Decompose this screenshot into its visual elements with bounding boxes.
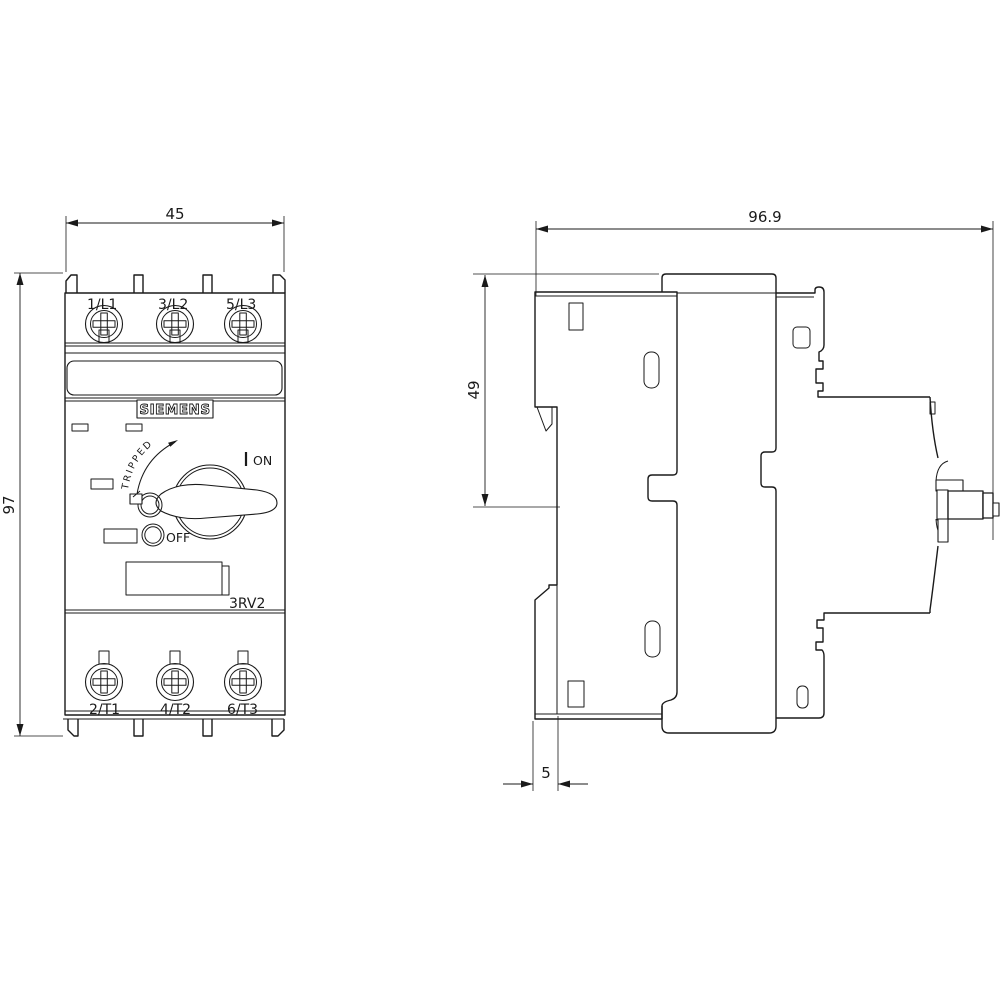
arc-chamber-band [67,361,282,395]
screw-slot-h [232,321,254,328]
raised-top-outline [662,274,776,292]
arrowhead-right-icon [521,781,533,788]
terminal-screw [157,651,194,701]
terminal-label-6T3: 6/T3 [227,702,258,718]
pivot-stop-block [130,494,142,504]
screw-slot-v [172,671,179,693]
label-field-step [222,566,229,595]
extension-lines-97 [14,273,63,736]
tripped-label-text: TRIPPED [120,438,156,492]
setting-window [104,529,137,543]
screw-slot-h [232,679,254,686]
top-mounting-tabs [66,275,285,293]
knob-disc-lower [938,519,948,542]
arrowhead-up-icon [17,273,24,285]
label-field [126,562,222,595]
front-face-upper [930,397,938,458]
brand-label: SIEMENS [139,402,210,418]
front-height-dimension: 97 [0,273,63,736]
front-switch: ON OFF TRIPPED [120,438,277,546]
technical-drawing-canvas: 45 97 SIEMENS 3RV2 [0,0,1000,1000]
front-view: 45 97 SIEMENS 3RV2 [0,205,285,736]
arrowhead-left-icon [558,781,570,788]
screw-slot-v [240,671,247,693]
cutout-slot [644,352,659,388]
front-width-dimension: 45 [66,205,284,272]
dim-value-97: 97 [0,495,18,514]
terminal-label-4T2: 4/T2 [160,702,191,718]
cutout-slot [793,327,810,348]
screw-slot-h [164,321,186,328]
terminal-screw [86,651,123,701]
side-knob-section [930,397,999,613]
upper-separator-lines [65,343,285,353]
bottom-foot-outline [662,706,776,733]
dim-value-49: 49 [465,380,483,399]
screw-head [230,669,257,696]
screw-head [162,669,189,696]
arrowhead-left-icon [536,226,548,233]
extension-lines-96-9 [536,221,993,540]
dim-value-45: 45 [165,205,184,223]
dim-value-5: 5 [541,764,551,782]
dim-value-96-9: 96.9 [748,208,781,226]
cutout-slot [797,686,808,708]
off-label: OFF [166,530,190,545]
side-middle-section [662,274,776,733]
terminal-label-3L2: 3/L2 [158,297,188,313]
vent-slot [126,424,142,431]
side-front-upper-section [776,287,930,718]
arrowhead-down-icon [17,724,24,736]
side-rail-dimension: 49 [465,274,659,507]
terminal-ring [157,664,194,701]
middle-right-edge [761,292,776,718]
arrowhead-down-icon [482,494,489,506]
terminal-tab [238,651,248,664]
knob-shaft-block [948,491,983,519]
bottom-mounting-tabs [68,719,284,736]
screw-head [230,311,257,338]
arrowhead-right-icon [981,226,993,233]
front-face-lower [930,546,938,613]
knob-handle [156,484,277,518]
arrowhead-left-icon [66,220,78,227]
side-depth-dimension: 96.9 [536,208,993,540]
terminal-label-2T1: 2/T1 [89,702,120,718]
off-symbol-inner [145,527,161,543]
screw-slot-v [101,671,108,693]
din-clip-hook [537,407,552,431]
extension-lines-45 [66,216,284,272]
tripped-label: TRIPPED [120,438,156,492]
test-button [91,479,113,489]
screw-slot-v [101,313,108,335]
front-upper-edge [776,287,930,397]
screw-slot-v [240,313,247,335]
front-lower-edge [776,613,930,718]
on-label: ON [253,453,272,468]
vent-slot [72,424,88,431]
knob-shaft-tip [993,503,999,516]
terminal-tab [99,651,109,664]
cutout-slot [645,621,660,657]
terminal-screw [225,651,262,701]
screw-slot-h [164,679,186,686]
terminal-label-5L3: 5/L3 [226,297,256,313]
dimension-drawing-page: 45 97 SIEMENS 3RV2 [0,0,1000,1000]
terminal-label-1L1: 1/L1 [87,297,117,313]
terminal-ring [225,664,262,701]
knob-disc-step [936,480,963,491]
screw-head [162,311,189,338]
knob-hub [937,490,948,520]
screw-slot-h [93,321,115,328]
screw-head [91,669,118,696]
side-clip-dimension: 5 [503,716,588,791]
front-terminals-top: 1/L1 3/L2 5/L3 [86,297,262,343]
arrowhead-right-icon [272,220,284,227]
arrowhead-up-icon [482,275,489,287]
side-view: 96.9 49 5 [465,208,999,791]
screw-head [91,311,118,338]
screw-slot-v [172,313,179,335]
cutout-slot [568,681,584,707]
rear-section-outline [535,292,677,719]
extension-lines-49 [473,274,659,507]
side-rear-section [535,292,677,719]
cutout-slot [569,303,583,330]
front-terminals-bottom: 2/T1 4/T2 6/T3 [86,651,262,718]
terminal-ring [86,664,123,701]
terminal-tab [170,651,180,664]
knob-shaft-cap [983,493,993,518]
screw-slot-h [93,679,115,686]
